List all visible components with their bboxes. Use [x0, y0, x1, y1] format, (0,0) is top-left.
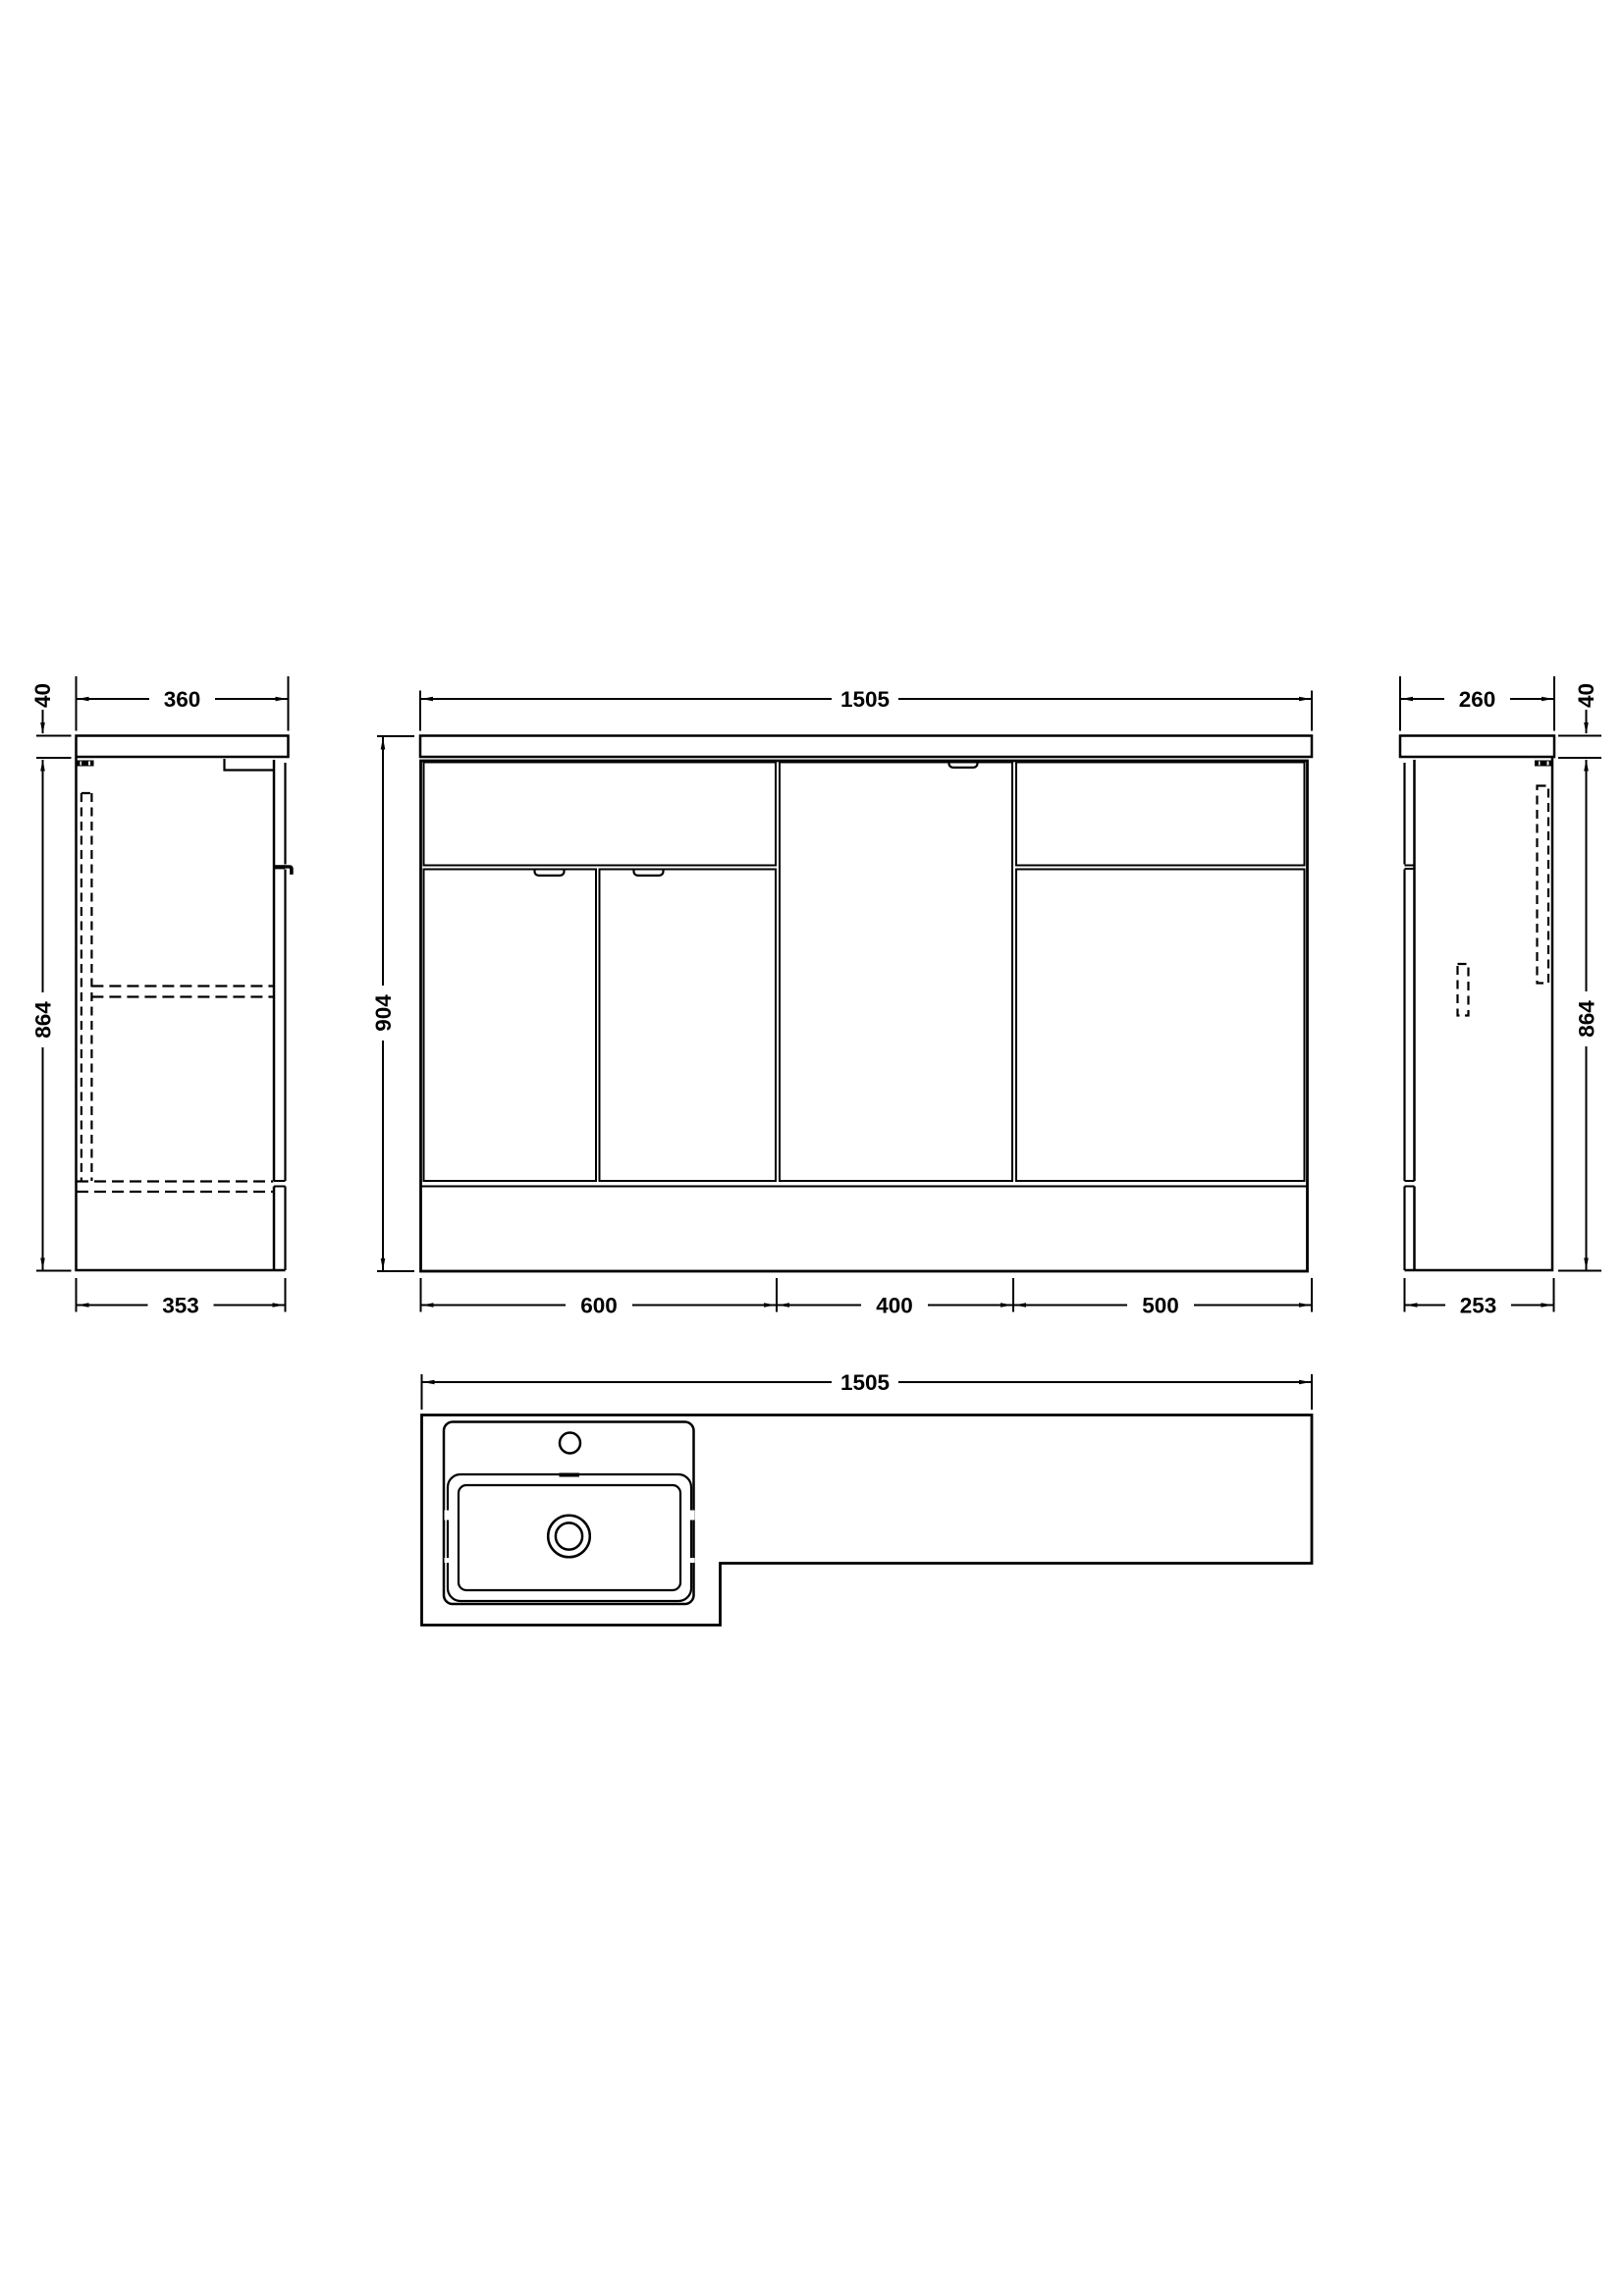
svg-text:500: 500 [1142, 1294, 1179, 1318]
svg-text:1505: 1505 [840, 1370, 890, 1395]
svg-text:353: 353 [162, 1294, 199, 1318]
svg-text:864: 864 [31, 1001, 56, 1039]
svg-text:260: 260 [1459, 687, 1496, 712]
svg-text:253: 253 [1460, 1294, 1497, 1318]
svg-text:400: 400 [876, 1294, 913, 1318]
svg-text:40: 40 [30, 683, 55, 708]
svg-text:864: 864 [1575, 1000, 1599, 1038]
svg-text:1505: 1505 [840, 687, 890, 712]
svg-text:40: 40 [1574, 683, 1598, 708]
svg-text:360: 360 [164, 687, 201, 712]
svg-text:904: 904 [371, 994, 396, 1032]
svg-text:600: 600 [580, 1294, 618, 1318]
